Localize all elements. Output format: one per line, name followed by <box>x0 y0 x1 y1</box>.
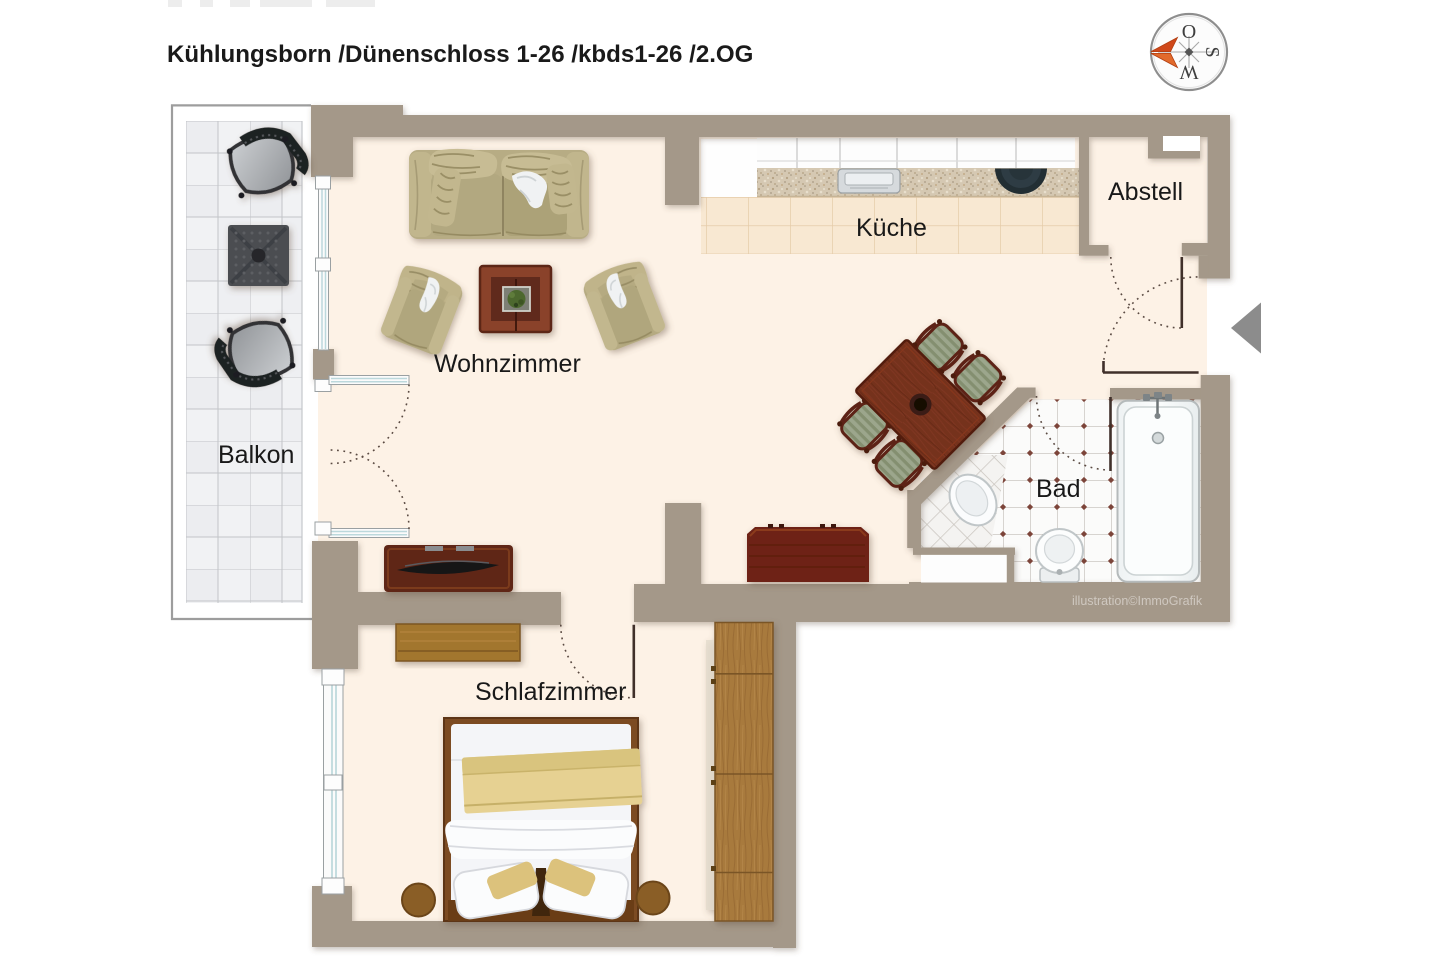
svg-text:W: W <box>1179 61 1198 83</box>
svg-text:Wohnzimmer: Wohnzimmer <box>434 350 581 378</box>
svg-text:Bad: Bad <box>1036 475 1080 503</box>
svg-text:Balkon: Balkon <box>218 441 294 469</box>
svg-text:Kühlungsborn /Dünenschloss 1-2: Kühlungsborn /Dünenschloss 1-26 /kbds1-2… <box>167 41 753 68</box>
svg-text:S: S <box>1201 46 1223 57</box>
svg-text:Küche: Küche <box>856 214 927 242</box>
svg-text:Schlafzimmer: Schlafzimmer <box>475 678 626 706</box>
svg-text:O: O <box>1182 21 1196 43</box>
svg-text:Abstell: Abstell <box>1108 178 1183 206</box>
svg-text:illustration©ImmoGrafik: illustration©ImmoGrafik <box>1072 594 1203 608</box>
